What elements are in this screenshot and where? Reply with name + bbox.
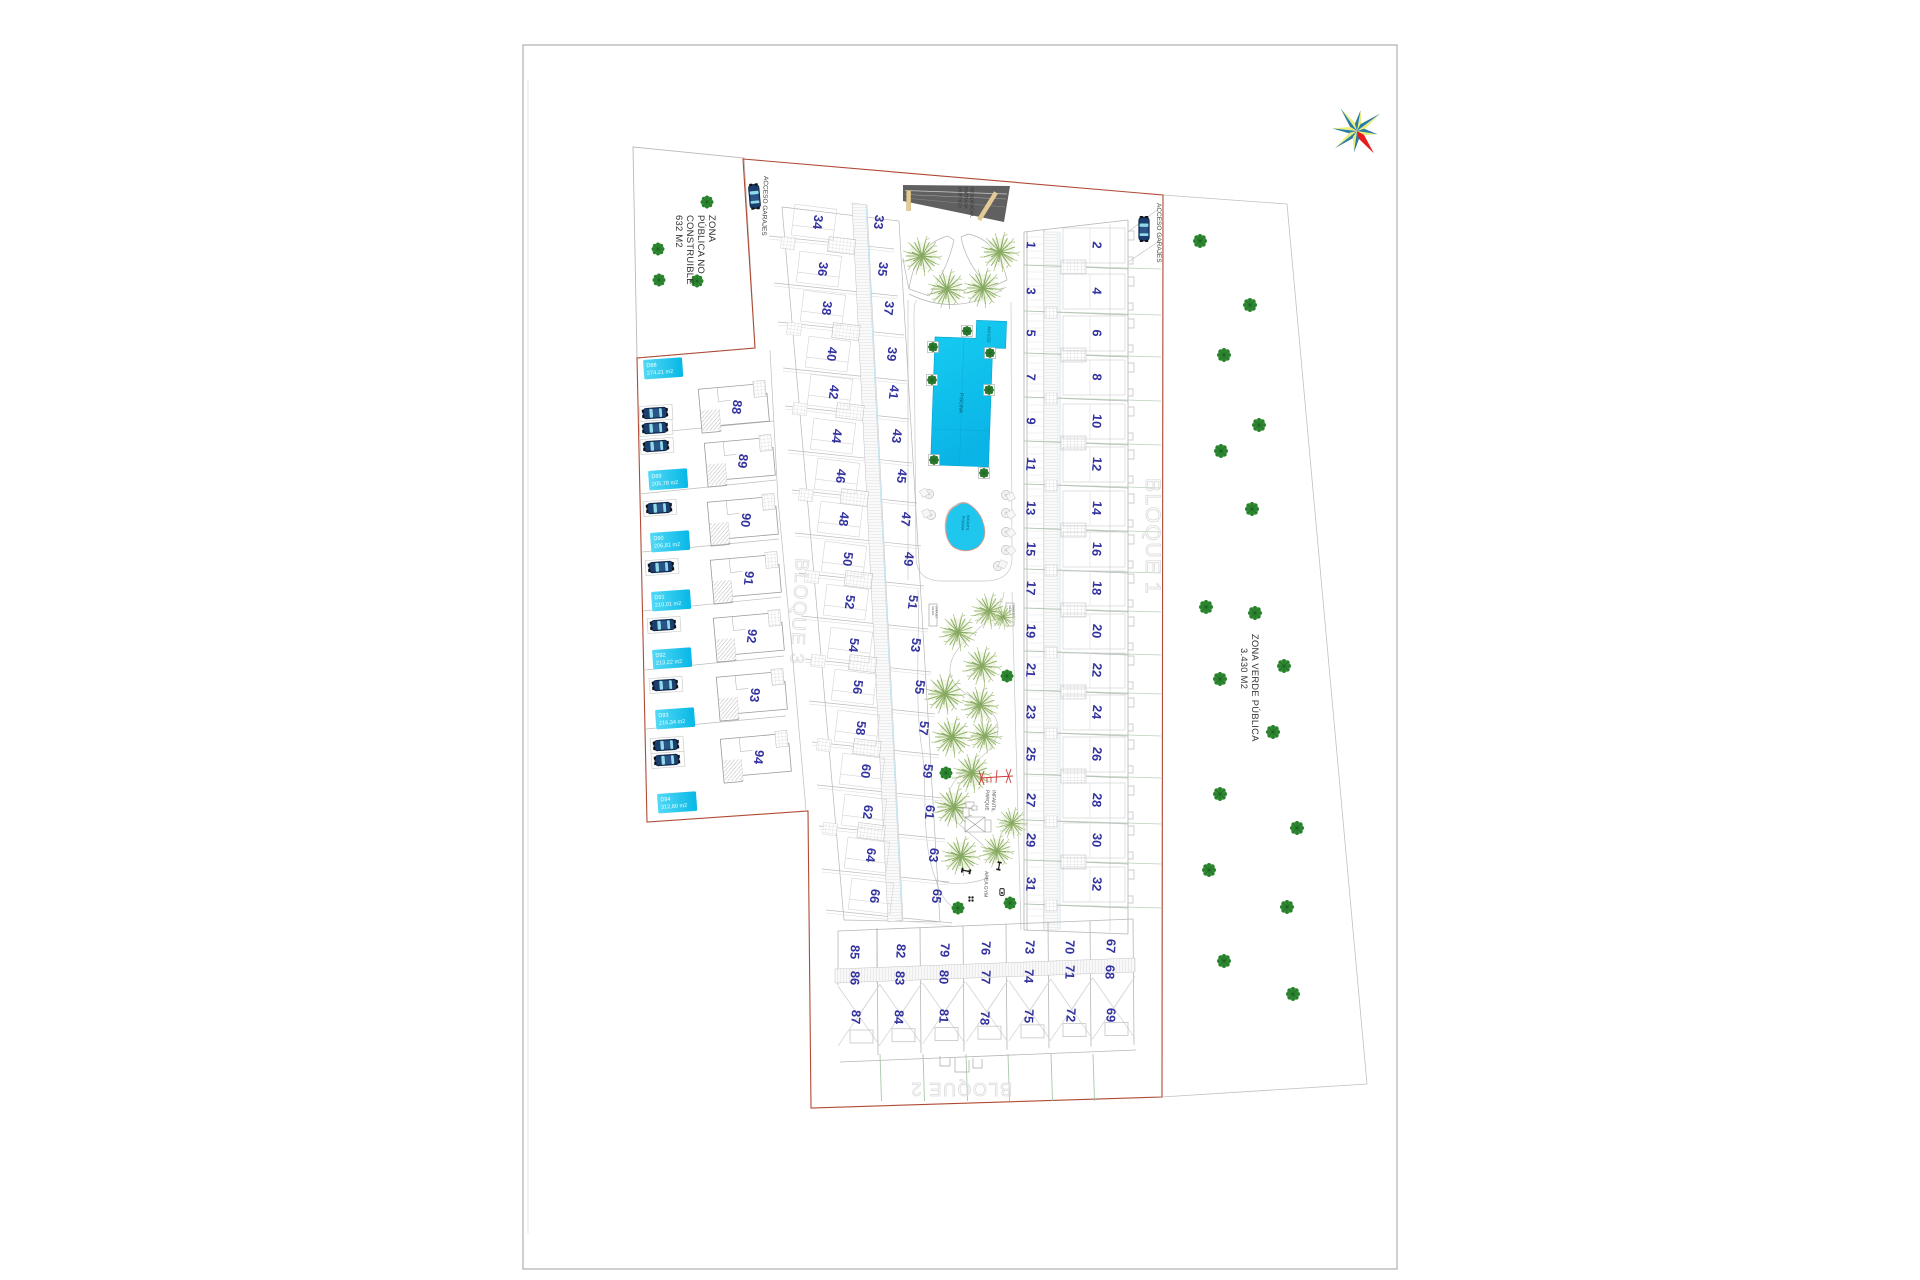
- svg-text:46: 46: [833, 468, 850, 484]
- svg-text:15: 15: [1023, 541, 1039, 556]
- svg-text:632 M2: 632 M2: [673, 215, 684, 248]
- svg-text:80: 80: [936, 970, 952, 985]
- svg-text:89: 89: [735, 453, 752, 469]
- svg-text:84: 84: [891, 1010, 907, 1026]
- svg-text:INFANTIL: INFANTIL: [965, 515, 970, 531]
- svg-text:66: 66: [867, 888, 884, 904]
- svg-text:39: 39: [884, 346, 901, 362]
- svg-text:ZONA: ZONA: [706, 215, 717, 243]
- svg-text:21: 21: [1023, 662, 1039, 677]
- svg-text:22: 22: [1089, 662, 1105, 677]
- svg-text:49: 49: [901, 551, 918, 567]
- svg-text:68: 68: [1102, 965, 1118, 980]
- svg-text:87: 87: [848, 1010, 864, 1025]
- svg-text:52: 52: [842, 594, 859, 610]
- svg-text:BLOQUE 1: BLOQUE 1: [1141, 478, 1164, 595]
- svg-text:28: 28: [1089, 792, 1105, 807]
- svg-text:D90: D90: [653, 536, 664, 543]
- svg-text:65: 65: [929, 888, 946, 904]
- svg-text:34: 34: [810, 214, 827, 231]
- svg-text:56: 56: [850, 679, 867, 695]
- svg-text:64: 64: [863, 847, 880, 864]
- svg-text:33: 33: [871, 214, 888, 230]
- svg-text:SALIDA: SALIDA: [931, 606, 935, 615]
- svg-text:35: 35: [875, 261, 892, 277]
- svg-text:27: 27: [1023, 792, 1039, 807]
- svg-text:51: 51: [905, 594, 922, 610]
- svg-text:PISCINA: PISCINA: [960, 516, 965, 531]
- svg-text:26: 26: [1089, 746, 1105, 761]
- svg-text:AREA GYM: AREA GYM: [982, 871, 989, 897]
- svg-text:37: 37: [881, 300, 898, 316]
- svg-text:CONSTRUIBLE: CONSTRUIBLE: [684, 215, 695, 285]
- svg-text:JACUZZI: JACUZZI: [986, 326, 992, 343]
- svg-text:PÚBLICA NO: PÚBLICA NO: [695, 215, 706, 274]
- svg-text:INFANTIL: INFANTIL: [990, 790, 997, 812]
- svg-text:PARQUE: PARQUE: [983, 790, 990, 812]
- svg-text:81: 81: [936, 1009, 952, 1024]
- svg-text:23: 23: [1023, 704, 1039, 719]
- svg-text:RESIDENCIAL: RESIDENCIAL: [970, 187, 975, 218]
- svg-text:59: 59: [920, 763, 937, 779]
- svg-text:60: 60: [858, 763, 875, 779]
- svg-text:17: 17: [1023, 580, 1039, 595]
- svg-text:11: 11: [1023, 457, 1039, 472]
- svg-text:40: 40: [824, 346, 841, 362]
- svg-text:18: 18: [1089, 580, 1105, 595]
- svg-text:70: 70: [1062, 940, 1078, 955]
- svg-text:1: 1: [1023, 241, 1039, 249]
- svg-text:12: 12: [1089, 456, 1105, 471]
- svg-text:24: 24: [1089, 704, 1105, 720]
- svg-text:PISCINA: PISCINA: [957, 393, 964, 414]
- svg-text:25: 25: [1023, 746, 1039, 761]
- svg-text:41: 41: [886, 384, 903, 400]
- svg-text:54: 54: [846, 637, 863, 654]
- svg-text:47: 47: [898, 511, 915, 527]
- svg-text:BLOQUE 2: BLOQUE 2: [910, 1079, 1012, 1099]
- svg-text:86: 86: [847, 971, 863, 986]
- svg-text:62: 62: [860, 804, 877, 820]
- svg-text:3.430 M2: 3.430 M2: [1239, 648, 1249, 689]
- svg-text:92: 92: [744, 628, 761, 644]
- svg-text:ZONA VERDE PÚBLICA: ZONA VERDE PÚBLICA: [1250, 634, 1260, 742]
- svg-text:61: 61: [922, 804, 939, 820]
- svg-text:16: 16: [1089, 541, 1105, 556]
- svg-text:43: 43: [889, 428, 906, 444]
- svg-text:32: 32: [1089, 876, 1105, 891]
- svg-text:78: 78: [977, 1011, 993, 1026]
- svg-text:57: 57: [916, 720, 933, 736]
- svg-text:94: 94: [751, 749, 768, 766]
- svg-text:74: 74: [1021, 969, 1037, 985]
- svg-text:67: 67: [1103, 939, 1119, 954]
- svg-text:D93: D93: [658, 713, 669, 720]
- svg-text:ENTRADA: ENTRADA: [964, 187, 969, 210]
- svg-text:2: 2: [1089, 241, 1105, 249]
- svg-text:D88: D88: [646, 363, 657, 370]
- svg-text:75: 75: [1021, 1009, 1037, 1024]
- svg-text:ACCESO GARAJES: ACCESO GARAJES: [1155, 203, 1162, 263]
- svg-text:72: 72: [1063, 1008, 1079, 1023]
- svg-text:31: 31: [1023, 876, 1039, 891]
- svg-text:5: 5: [1023, 329, 1039, 337]
- svg-text:77: 77: [978, 970, 994, 985]
- svg-text:76: 76: [978, 941, 994, 956]
- svg-text:88: 88: [729, 399, 746, 415]
- svg-text:7: 7: [1023, 373, 1039, 381]
- svg-text:83: 83: [892, 971, 908, 986]
- svg-text:45: 45: [894, 468, 911, 484]
- svg-text:30: 30: [1089, 832, 1105, 847]
- svg-text:82: 82: [893, 944, 909, 959]
- svg-text:69: 69: [1103, 1008, 1119, 1023]
- svg-text:14: 14: [1089, 500, 1105, 516]
- svg-text:90: 90: [738, 512, 755, 528]
- svg-text:71: 71: [1062, 965, 1078, 980]
- svg-text:48: 48: [836, 511, 853, 527]
- svg-text:91: 91: [741, 570, 758, 586]
- svg-text:D92: D92: [655, 653, 666, 660]
- svg-text:D89: D89: [651, 474, 662, 481]
- svg-text:79: 79: [937, 943, 953, 958]
- svg-text:D91: D91: [654, 595, 665, 602]
- svg-text:D94: D94: [660, 797, 671, 804]
- svg-text:50: 50: [840, 551, 857, 567]
- svg-text:73: 73: [1022, 940, 1038, 955]
- svg-text:38: 38: [819, 300, 836, 316]
- svg-text:20: 20: [1089, 623, 1105, 638]
- svg-text:GARAJES: GARAJES: [935, 606, 939, 618]
- svg-text:36: 36: [815, 261, 832, 277]
- svg-text:85: 85: [847, 945, 863, 960]
- svg-text:55: 55: [912, 679, 929, 695]
- svg-text:8: 8: [1089, 373, 1105, 381]
- svg-text:6: 6: [1089, 329, 1105, 337]
- svg-text:42: 42: [826, 384, 843, 400]
- svg-text:PORTICO: PORTICO: [958, 187, 963, 208]
- svg-text:93: 93: [747, 687, 764, 703]
- svg-text:53: 53: [908, 637, 925, 653]
- svg-text:19: 19: [1023, 623, 1039, 638]
- svg-text:63: 63: [926, 847, 943, 863]
- svg-text:9: 9: [1023, 417, 1039, 425]
- svg-text:44: 44: [829, 428, 846, 445]
- svg-text:10: 10: [1089, 413, 1105, 428]
- svg-text:13: 13: [1023, 500, 1039, 515]
- svg-text:29: 29: [1023, 832, 1039, 847]
- svg-text:58: 58: [853, 720, 870, 736]
- svg-text:3: 3: [1023, 287, 1039, 295]
